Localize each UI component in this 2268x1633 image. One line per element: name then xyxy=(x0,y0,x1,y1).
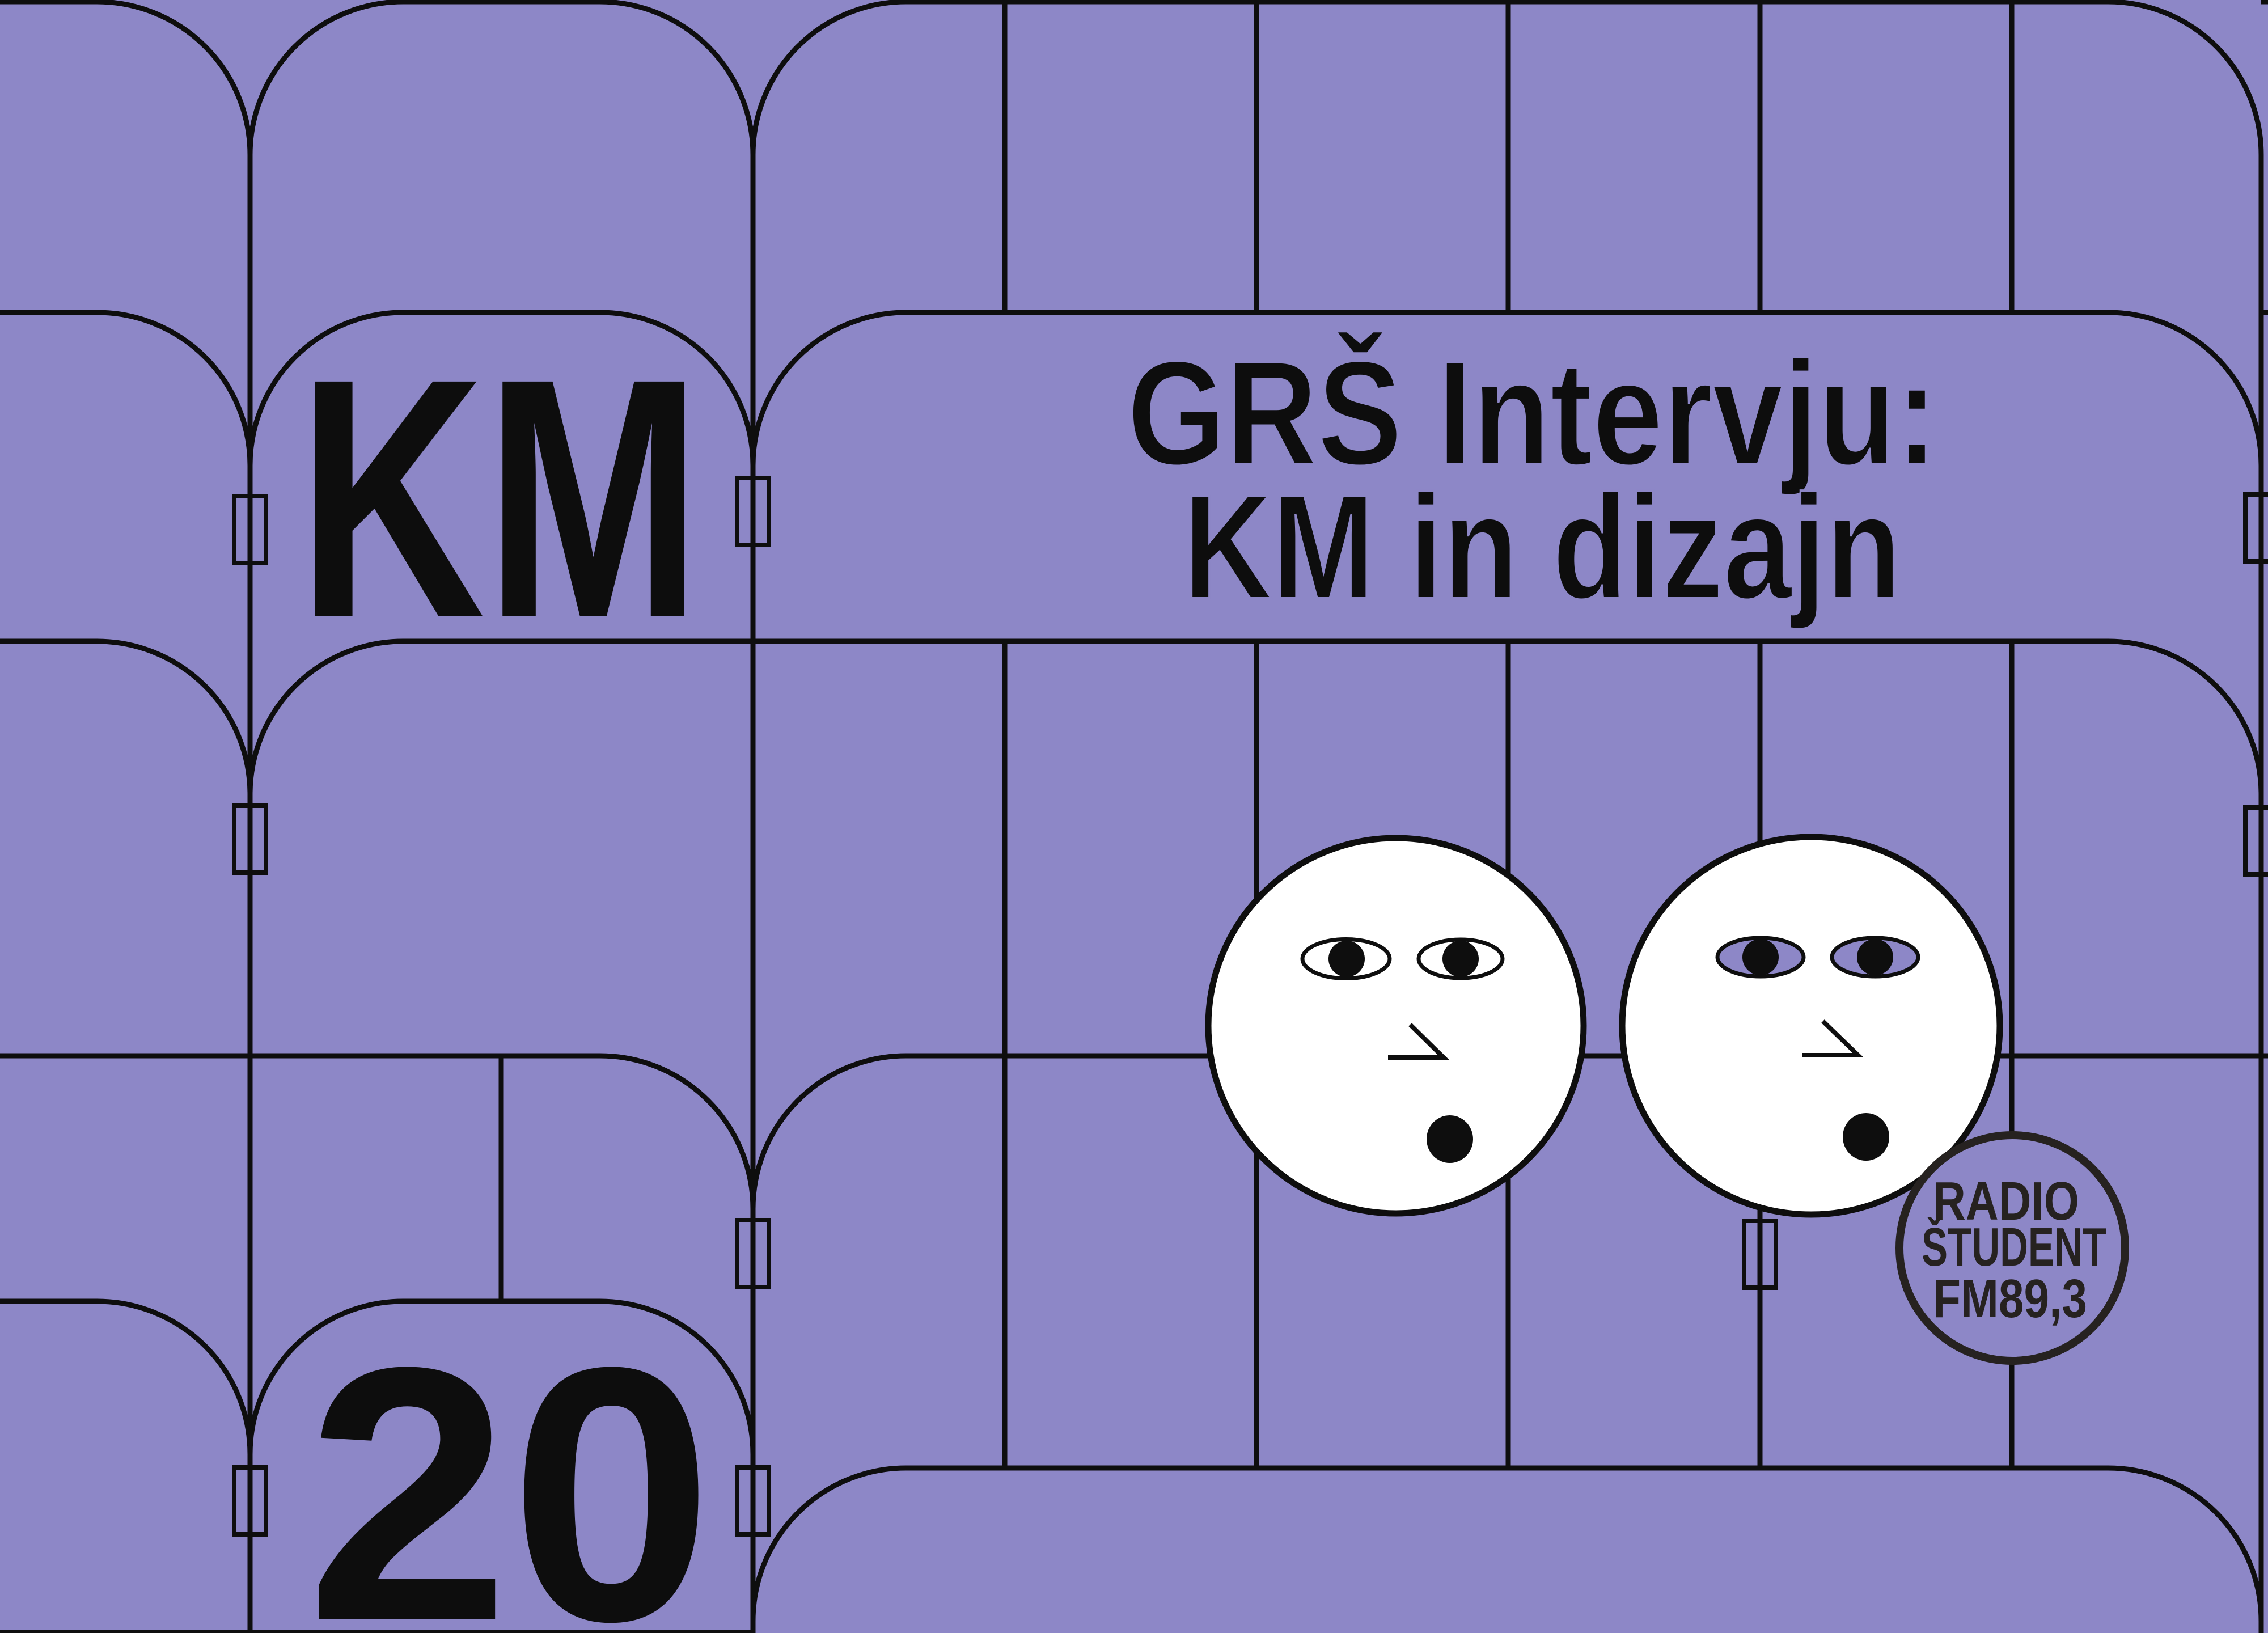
svg-text:20: 20 xyxy=(306,1292,713,1633)
svg-text:FM89,3: FM89,3 xyxy=(1933,1268,2087,1329)
svg-text:KM in dizajn: KM in dizajn xyxy=(1183,464,1901,631)
svg-text:KM: KM xyxy=(298,307,701,689)
